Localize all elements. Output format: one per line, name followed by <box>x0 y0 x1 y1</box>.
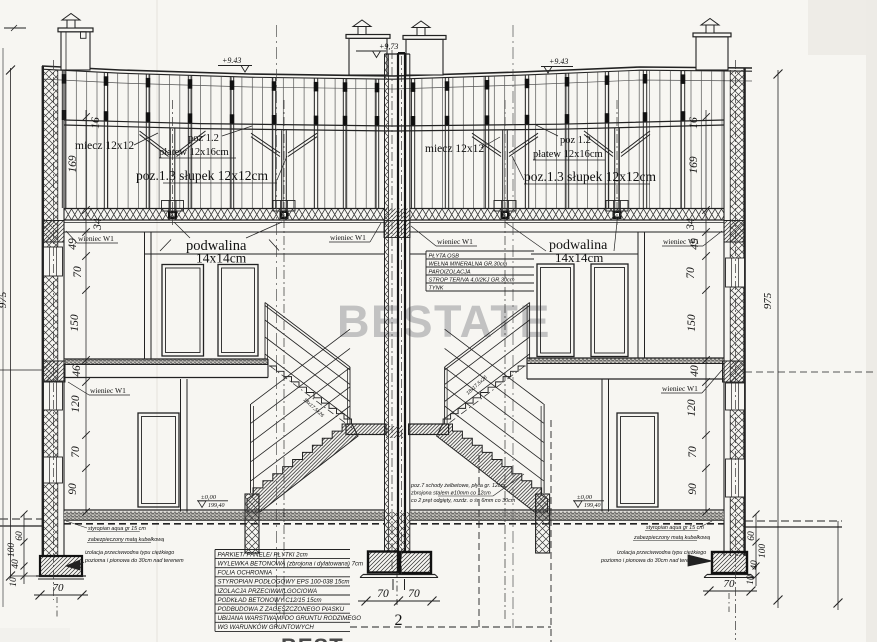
svg-text:wieniec W1: wieniec W1 <box>437 237 473 246</box>
svg-text:WG WARUNKÓW GRUNTOWYCH: WG WARUNKÓW GRUNTOWYCH <box>218 624 315 631</box>
svg-text:wieniec W1: wieniec W1 <box>663 237 699 246</box>
svg-text:16: 16 <box>688 117 700 129</box>
svg-text:TYNK: TYNK <box>429 285 444 291</box>
svg-text:10: 10 <box>9 577 19 587</box>
svg-text:199,40: 199,40 <box>208 502 225 509</box>
svg-text:styropian aqua gr 15 cm: styropian aqua gr 15 cm <box>646 525 704 531</box>
svg-text:+9,73: +9,73 <box>379 42 398 51</box>
svg-text:WYLEWKA BETONOWA (zbrojona i d: WYLEWKA BETONOWA (zbrojona i dylatowana)… <box>218 561 364 568</box>
svg-text:PODBUDOWA Z ZAGĘSZCZONEGO PIAS: PODBUDOWA Z ZAGĘSZCZONEGO PIASKU <box>218 606 345 613</box>
svg-text:STYROPIAN PODŁOGOWY EPS 100-03: STYROPIAN PODŁOGOWY EPS 100-038 15cm <box>218 579 350 586</box>
svg-text:120: 120 <box>70 395 82 413</box>
svg-text:60: 60 <box>747 531 757 541</box>
svg-text:34: 34 <box>685 218 697 231</box>
svg-text:poziomo i pionowa do 30cm nad: poziomo i pionowa do 30cm nad terenem <box>600 558 700 564</box>
svg-text:miecz 12x12: miecz 12x12 <box>75 140 134 152</box>
svg-text:70: 70 <box>687 446 699 458</box>
svg-text:70: 70 <box>408 588 420 600</box>
svg-text:975: 975 <box>762 292 774 309</box>
svg-text:150: 150 <box>69 314 81 332</box>
svg-text:wieniec W1: wieniec W1 <box>90 386 126 395</box>
svg-text:co 2 pręt odgięty, rozdz. o śr: co 2 pręt odgięty, rozdz. o śr. 6mm co 3… <box>411 498 516 504</box>
svg-text:34: 34 <box>92 218 104 231</box>
svg-text:70: 70 <box>70 446 82 458</box>
svg-text:zabezpieczony matą kubełkową: zabezpieczony matą kubełkową <box>87 537 164 543</box>
svg-text:70: 70 <box>724 578 736 590</box>
svg-text:poz 1.2: poz 1.2 <box>560 135 591 146</box>
svg-text:169: 169 <box>67 155 79 173</box>
svg-text:PARKIET/ PANELE/ PŁYTKI 2cm: PARKIET/ PANELE/ PŁYTKI 2cm <box>218 551 308 558</box>
svg-text:±0,00: ±0,00 <box>577 494 593 501</box>
svg-text:UBIJANA WARSTWAMI DO GRUNTU RO: UBIJANA WARSTWAMI DO GRUNTU RODZIMEGO <box>218 615 362 622</box>
svg-text:14x14cm: 14x14cm <box>555 250 603 265</box>
svg-text:2: 2 <box>395 612 403 629</box>
svg-text:BEST: BEST <box>281 634 344 642</box>
svg-text:poz 1.2: poz 1.2 <box>188 133 219 144</box>
svg-text:miecz 12x12: miecz 12x12 <box>425 143 484 155</box>
svg-text:150: 150 <box>686 314 698 332</box>
svg-text:poz.7 schody żelbetowe, płyta: poz.7 schody żelbetowe, płyta gr. 12cm <box>410 483 506 489</box>
svg-text:poz.1.3 słupek 12x12cm: poz.1.3 słupek 12x12cm <box>524 169 656 184</box>
svg-text:70: 70 <box>377 588 389 600</box>
svg-text:wieniec W1: wieniec W1 <box>662 384 698 393</box>
svg-text:izolacja przeciwwodna typu cię: izolacja przeciwwodna typu ciężkiego <box>617 550 706 556</box>
svg-text:wieniec W1: wieniec W1 <box>330 233 366 242</box>
svg-text:100: 100 <box>7 543 17 558</box>
svg-text:izolacja przeciwwodna typu cię: izolacja przeciwwodna typu ciężkiego <box>85 550 174 556</box>
svg-text:120: 120 <box>686 399 698 417</box>
svg-text:+9.43: +9.43 <box>549 57 568 66</box>
svg-text:16: 16 <box>90 117 102 129</box>
svg-text:PODKŁAD BETONOWY C12/15: PODKŁAD BETONOWY C12/15 15cm <box>218 597 322 604</box>
svg-text:±0,00: ±0,00 <box>201 494 217 501</box>
svg-text:90: 90 <box>67 483 79 495</box>
svg-text:STROP TERIVA 4,0/2KJ GR.30cm: STROP TERIVA 4,0/2KJ GR.30cm <box>429 277 515 283</box>
svg-text:pozioma i pionowa do 30cm nad: pozioma i pionowa do 30cm nad terenem <box>84 558 184 564</box>
svg-text:975: 975 <box>0 291 9 308</box>
svg-text:100: 100 <box>758 544 768 559</box>
svg-text:70: 70 <box>72 266 84 278</box>
svg-text:14x14cm: 14x14cm <box>196 251 247 266</box>
svg-text:169: 169 <box>688 156 700 174</box>
svg-text:199,40: 199,40 <box>584 502 601 509</box>
svg-text:zabezpieczony matą kubełkową: zabezpieczony matą kubełkową <box>633 535 710 541</box>
svg-text:60: 60 <box>15 531 25 541</box>
svg-text:IZOLACJA PRZECIWWILGOCIOWA: IZOLACJA PRZECIWWILGOCIOWA <box>218 588 318 595</box>
svg-text:styropian aqua gr 15 cm: styropian aqua gr 15 cm <box>88 526 146 532</box>
svg-text:BESTATE: BESTATE <box>337 296 551 347</box>
svg-text:wieniec W1: wieniec W1 <box>78 234 114 243</box>
svg-text:10: 10 <box>746 575 756 585</box>
svg-text:+9.43: +9.43 <box>222 56 241 65</box>
svg-text:40: 40 <box>11 559 21 569</box>
svg-text:40: 40 <box>750 560 760 570</box>
svg-text:70: 70 <box>685 267 697 279</box>
svg-text:WEŁNA MINERALNA GR.30cm: WEŁNA MINERALNA GR.30cm <box>429 261 508 267</box>
svg-text:płatew 12x16cm: płatew 12x16cm <box>159 147 229 158</box>
svg-text:90: 90 <box>687 483 699 495</box>
svg-text:70: 70 <box>53 582 65 594</box>
svg-text:40: 40 <box>689 365 701 377</box>
svg-text:FOLIA OCHRONNA: FOLIA OCHRONNA <box>218 570 273 577</box>
svg-text:płatew 12x16cm: płatew 12x16cm <box>533 149 603 160</box>
svg-text:46: 46 <box>71 365 83 377</box>
svg-text:PAROIZOLACJA: PAROIZOLACJA <box>429 269 471 275</box>
svg-text:PŁYTA OSB: PŁYTA OSB <box>429 253 460 259</box>
svg-text:poz.1.3 słupek 12x12cm: poz.1.3 słupek 12x12cm <box>136 168 268 183</box>
